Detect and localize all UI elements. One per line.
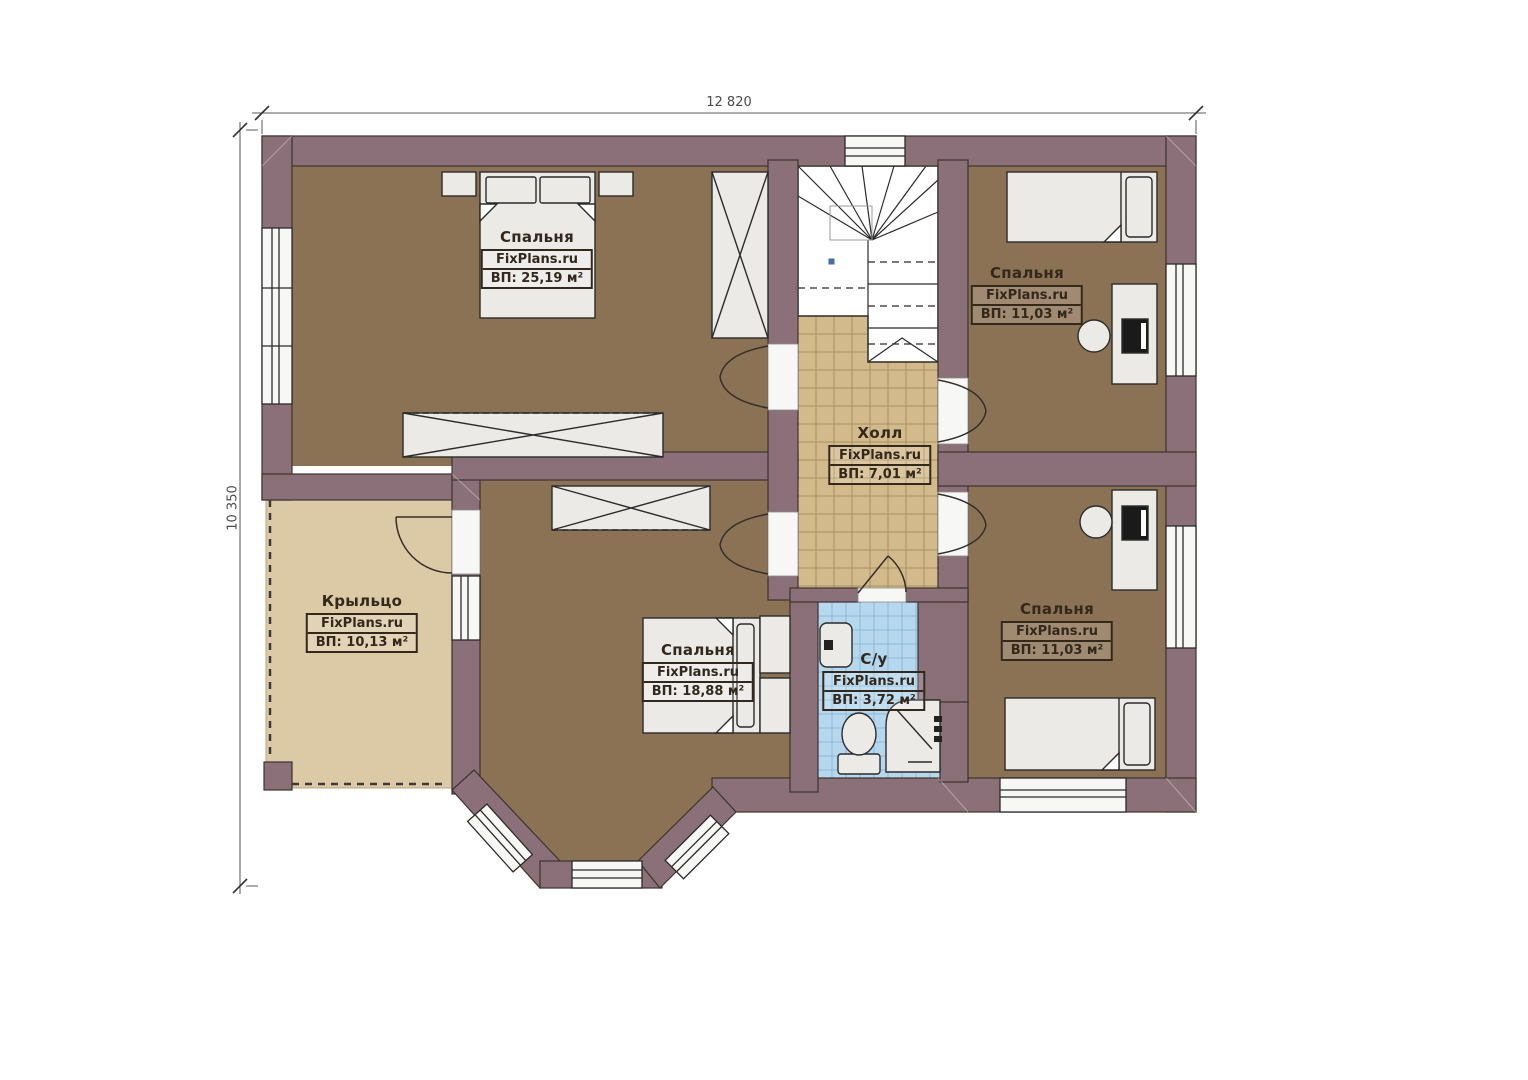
room-brand: FixPlans.ru (973, 287, 1081, 304)
room-area: ВП: 18,88 м² (644, 681, 752, 700)
wall-bath-right-lower (940, 702, 968, 782)
floor-plan (0, 0, 1528, 1080)
room-area: ВП: 10,13 м² (308, 632, 416, 651)
room-brand: FixPlans.ru (1003, 623, 1111, 640)
wall-bath-stub-right (906, 588, 968, 602)
wall-divider-tr-br (938, 452, 1196, 486)
room-label-bathroom: С/у FixPlans.ru ВП: 3,72 м² (822, 650, 925, 711)
room-brand: FixPlans.ru (830, 447, 929, 464)
desk (1112, 284, 1157, 384)
nightstand (442, 172, 476, 196)
wall-top (262, 136, 1196, 166)
single-bed (1005, 698, 1155, 770)
room-label-bedroom-bc: Спальня FixPlans.ru ВП: 18,88 м² (642, 641, 754, 702)
opening-porch-door (452, 510, 480, 574)
room-name: Холл (828, 424, 931, 442)
room-brand: FixPlans.ru (824, 673, 923, 690)
room-info-box: FixPlans.ru ВП: 10,13 м² (306, 613, 418, 653)
window-bay-bottom (572, 861, 642, 888)
opening-bedroom-tl (768, 344, 798, 410)
room-area: ВП: 25,19 м² (483, 268, 591, 287)
nightstand (760, 616, 790, 673)
room-area: ВП: 7,01 м² (830, 464, 929, 483)
room-label-bedroom-tl: Спальня FixPlans.ru ВП: 25,19 м² (481, 228, 593, 289)
wardrobe (552, 486, 710, 530)
opening-bathroom (858, 588, 906, 602)
wall-bath-stub-left (790, 588, 860, 602)
wardrobe (712, 172, 768, 338)
room-info-box: FixPlans.ru ВП: 7,01 м² (828, 445, 931, 485)
dimension-left: 10 350 (226, 485, 241, 531)
porch-post (264, 762, 292, 790)
room-name: С/у (822, 650, 925, 668)
wardrobe (403, 413, 663, 457)
nightstand (760, 678, 790, 733)
office-chair (1080, 506, 1112, 538)
room-label-bedroom-tr: Спальня FixPlans.ru ВП: 11,03 м² (971, 264, 1083, 325)
wall-bath-left (790, 592, 818, 792)
room-brand: FixPlans.ru (644, 664, 752, 681)
opening-bedroom-bc (768, 512, 798, 576)
wall-porch-top (262, 474, 454, 500)
window-bottom-br (1000, 778, 1126, 812)
room-name: Спальня (481, 228, 593, 246)
window-right-br (1166, 526, 1196, 648)
room-name: Спальня (642, 641, 754, 659)
room-area: ВП: 3,72 м² (824, 690, 923, 709)
room-info-box: FixPlans.ru ВП: 11,03 м² (1001, 621, 1113, 661)
room-info-box: FixPlans.ru ВП: 11,03 м² (971, 285, 1083, 325)
nightstand (599, 172, 633, 196)
cad-marker (828, 258, 835, 265)
single-bed (1007, 172, 1157, 242)
room-brand: FixPlans.ru (483, 251, 591, 268)
toilet (838, 713, 880, 774)
room-name: Спальня (1001, 600, 1113, 618)
room-area: ВП: 11,03 м² (1003, 640, 1111, 659)
room-name: Спальня (971, 264, 1083, 282)
room-area: ВП: 11,03 м² (973, 304, 1081, 323)
desk (1112, 490, 1157, 590)
room-name: Крыльцо (306, 592, 418, 610)
dimension-top: 12 820 (706, 95, 752, 110)
window-right-tr (1166, 264, 1196, 376)
room-brand: FixPlans.ru (308, 615, 416, 632)
room-info-box: FixPlans.ru ВП: 25,19 м² (481, 249, 593, 289)
room-label-hall: Холл FixPlans.ru ВП: 7,01 м² (828, 424, 931, 485)
window-porch-house (452, 576, 480, 640)
room-label-bedroom-br: Спальня FixPlans.ru ВП: 11,03 м² (1001, 600, 1113, 661)
window-left (262, 228, 292, 404)
room-info-box: FixPlans.ru ВП: 18,88 м² (642, 662, 754, 702)
room-info-box: FixPlans.ru ВП: 3,72 м² (822, 671, 925, 711)
room-label-porch: Крыльцо FixPlans.ru ВП: 10,13 м² (306, 592, 418, 653)
window-top-stairs (845, 136, 905, 166)
